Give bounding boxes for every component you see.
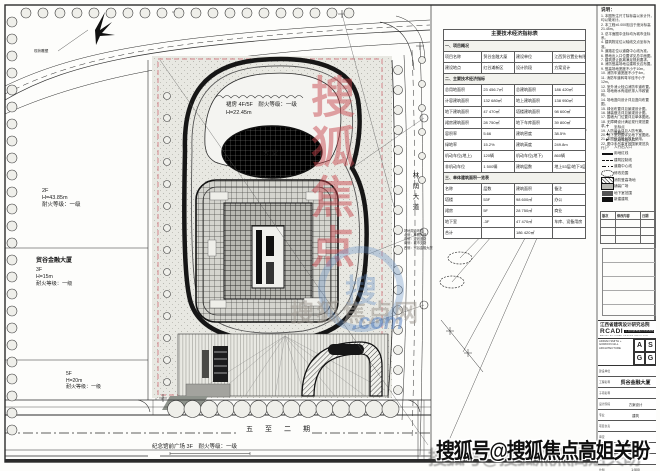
tree-symbol: [217, 401, 234, 418]
tree-symbol: [7, 221, 17, 231]
tree-symbol: [419, 177, 426, 184]
architect-block: ADRIAN SMITH +GORDON GILLARCHITECTURE AS…: [598, 339, 656, 366]
legend-symbol-tri-icon: ▲: [605, 132, 609, 137]
tree-symbol: [419, 57, 426, 64]
tree-symbol: [259, 8, 269, 18]
stamp-box: [602, 248, 656, 316]
tree-symbol: [293, 8, 303, 18]
tree-symbol: [7, 34, 17, 44]
table-row: 三、单体建筑面积一览表: [444, 173, 586, 184]
tree-symbol: [333, 401, 350, 418]
titleblock-row: 专业建筑: [598, 410, 656, 421]
tree-symbol: [21, 8, 31, 18]
watermark-bottom: 搜狐号@搜狐焦点高姐关盼: [436, 434, 660, 464]
podium-label: 裙房 4F/5F 耐火等级：一级 H=22.45m: [226, 101, 297, 117]
legend-item: 建筑控制线: [601, 157, 654, 164]
tree-symbol: [201, 401, 218, 418]
tree-symbol: [344, 8, 354, 18]
tree-symbol: [7, 408, 17, 418]
tree-symbol: [164, 379, 171, 386]
tree-symbol: [366, 401, 383, 418]
table-row: 地下建筑面积47 470㎡塔楼建筑面积98 600㎡: [444, 107, 586, 118]
tree-symbol: [267, 401, 284, 418]
legend-symbol-dark-icon: [602, 191, 613, 196]
tree-symbol: [7, 51, 17, 61]
tree-symbol: [382, 401, 399, 418]
plaza-label: 纪念馆前广场 3F 耐火等级：一级: [152, 442, 237, 450]
tree-symbol: [72, 8, 82, 18]
notes-title: 说明：: [601, 7, 654, 13]
tree-symbol: [164, 137, 171, 144]
firm-abbr: RCADI: [600, 328, 623, 335]
tree-symbol: [7, 153, 17, 163]
legend-item: 新建建筑: [601, 197, 654, 204]
note-line: 4. 建筑物定位以轴线交点坐标为准。: [601, 40, 654, 49]
tree-symbol: [7, 204, 17, 214]
legend-symbol-linet-icon: [602, 153, 613, 155]
tree-symbol: [394, 126, 403, 135]
tree-symbol: [164, 159, 171, 166]
tree-symbol: [316, 401, 333, 418]
tree-symbol: [394, 186, 403, 195]
tree-symbol: [349, 401, 366, 418]
tree-symbol: [225, 8, 235, 18]
tree-symbol: [7, 357, 17, 367]
legend-item: +坐标点: [601, 124, 654, 131]
legend-symbol-gray-icon: [601, 183, 614, 190]
tree-symbol: [419, 105, 426, 112]
firm-chip: 江西省建筑设计研究总院集团股份有限公司: [624, 330, 654, 334]
watermark-com-text: .com: [352, 309, 403, 335]
tree-symbol: [174, 8, 184, 18]
tree-symbol: [7, 17, 17, 27]
tree-symbol: [7, 425, 17, 435]
titleblock-row: 设计阶段方案设计: [598, 399, 656, 410]
tree-symbol: [164, 181, 171, 188]
parcel-a-label: 2F H=43.85m 耐火等级：一级: [42, 188, 81, 209]
tree-symbol: [327, 8, 337, 18]
legend-item: 用地红线: [601, 150, 654, 157]
tree-symbol: [7, 170, 17, 180]
table-row: 合计186 420㎡: [444, 228, 586, 239]
legend-item: ►机动车出入口: [601, 137, 654, 144]
note-line: 13. 场地雨水有组织排入市政管网。: [601, 89, 654, 98]
revision-table: 版次修改内容日期: [600, 211, 656, 244]
note-line: 1. 本图所注尺寸除标高以米计外，均以毫米计。: [601, 14, 654, 23]
tree-symbol: [7, 255, 17, 265]
titleblock-row: 项目负责: [598, 421, 656, 432]
tree-symbol: [7, 102, 17, 112]
tree-symbol: [7, 136, 17, 146]
tree-symbol: [140, 8, 150, 18]
table-row: 主要技术经济指标表: [444, 30, 586, 41]
legend-item: 地下室范围: [601, 190, 654, 197]
table-row: 非机动车位1 500辆建筑层数地上53层/地下3层: [444, 162, 586, 173]
legend-symbol-arrf-icon: ►: [605, 138, 609, 143]
tree-symbol: [7, 306, 17, 316]
lobby-label: 大堂: [263, 147, 280, 157]
tree-symbol: [394, 86, 403, 95]
tree-symbol: [419, 81, 426, 88]
tree-symbol: [164, 291, 171, 298]
tree-symbol: [310, 8, 320, 18]
note-line: 14. 场地竖向设计详见竖向布置图。: [601, 98, 654, 107]
table-row: 名称层数建筑面积备注: [444, 184, 586, 195]
table-row: 容积率5.66建筑密度38.5%: [444, 129, 586, 140]
table-row: 二、主要技术经济指标: [444, 74, 586, 85]
survey-marks: [441, 320, 483, 372]
table-row: 项目名称贸谷金融大厦建设单位江西贸谷置业有限公司: [444, 52, 586, 63]
tree-symbol: [164, 93, 171, 100]
legend-symbol-cross-icon: +: [606, 124, 610, 130]
table-row: 绿地率15.2%建筑高度249.8m: [444, 140, 586, 151]
legend-item: 铺装广场: [601, 183, 654, 190]
firm-sub: ARCHITECTURAL DESIGN INSTITUTE: [600, 335, 654, 337]
note-line: 2. 本工程±0.000相当于绝对标高21.45m。: [601, 23, 654, 32]
technical-indicator-table: 主要技术经济指标表一、项目概况项目名称贸谷金融大厦建设单位江西贸谷置业有限公司建…: [443, 29, 586, 238]
legend-item: ▷人行出入口: [601, 144, 654, 151]
tree-symbol: [7, 289, 17, 299]
tree-symbol: [184, 401, 201, 418]
tree-symbol: [394, 386, 403, 395]
tree-symbol: [7, 272, 17, 282]
legend-item: ▲高程点: [601, 131, 654, 138]
tree-symbol: [394, 106, 403, 115]
tree-symbol: [7, 374, 17, 384]
tree-symbol: [106, 8, 116, 18]
legend-symbol-black-icon: [602, 197, 613, 202]
tree-symbol: [300, 401, 317, 418]
titleblock-row: 建设单位: [598, 366, 656, 377]
legend-symbol-linedd-icon: [602, 166, 613, 167]
titleblock-row: 工程名称贸谷金融大厦: [598, 377, 656, 388]
tree-symbol: [7, 391, 17, 401]
tree-symbol: [157, 8, 167, 18]
tree-symbol: [394, 346, 403, 355]
tree-symbol: [7, 85, 17, 95]
parcel-a-floors: 2F: [42, 188, 81, 195]
tree-symbol: [419, 129, 426, 136]
tree-symbol: [164, 203, 171, 210]
tree-symbol: [164, 115, 171, 122]
asgg-logo: ASGG: [633, 339, 656, 365]
tree-symbol: [38, 8, 48, 18]
tree-symbol: [276, 8, 286, 18]
tree-symbol: [419, 153, 426, 160]
titleblock-row: 子项名称: [598, 388, 656, 399]
tree-symbol: [7, 119, 17, 129]
parcel-b-label: 3F H=15m 耐火等级：一级: [36, 267, 72, 287]
service-pad: [186, 384, 230, 397]
table-row: 建设地点红谷滩新区设计阶段方案设计: [444, 63, 586, 74]
tree-symbol: [394, 366, 403, 375]
legend-symbol-lined-icon: [602, 160, 613, 161]
tree-symbol: [208, 8, 218, 18]
road-name-right: 林荫大道: [409, 172, 419, 214]
tree-symbol: [7, 323, 17, 333]
sculpture-label: 现状雕塑: [34, 49, 48, 54]
tree-symbol: [7, 187, 17, 197]
legend-symbol-arro-icon: ▷: [606, 145, 609, 150]
tree-symbol: [164, 313, 171, 320]
tree-symbol: [164, 335, 171, 342]
side-note-line: 西侧：贸谷金融大厦: [404, 246, 460, 250]
table-row: 塔楼53F98 600㎡办公: [444, 195, 586, 206]
watermark-red-vertical: 搜狐焦点: [296, 74, 360, 274]
drawing-sheet: 现状雕塑 2F H=43.85m 耐火等级：一级 贸谷金融大厦 3F H=15m…: [0, 0, 660, 471]
tree-symbol: [394, 246, 403, 255]
parcel-a-fire-rating: 耐火等级：一级: [42, 202, 81, 209]
tree-symbol: [7, 238, 17, 248]
tree-symbol: [250, 401, 267, 418]
dimension-line: [170, 452, 250, 455]
note-line: 5. 道路定位以道路中心线为准。: [601, 49, 654, 53]
tree-symbol: [283, 401, 300, 418]
tree-symbol: [164, 247, 171, 254]
escalator-block: [213, 346, 228, 382]
tree-symbol: [7, 68, 17, 78]
tree-symbol: [164, 357, 171, 364]
table-row: 裙房建筑面积28 750㎡地下车库面积39 800㎡: [444, 118, 586, 129]
tree-symbol: [394, 66, 403, 75]
tree-symbol: [394, 146, 403, 155]
tree-symbol: [191, 8, 201, 18]
table-row: 总用地面积23 456.7㎡总建筑面积186 420㎡: [444, 85, 586, 96]
table-row: 裙房5F28 750㎡商业: [444, 206, 586, 217]
parcel-b-name: 贸谷金融大厦: [36, 255, 72, 264]
tree-symbol: [168, 401, 185, 418]
design-firm-brand: 江西省建筑设计研究总院 RCADI 江西省建筑设计研究总院集团股份有限公司 AR…: [598, 321, 656, 339]
tree-symbol: [123, 8, 133, 18]
table-row: 机动车位(地上)120辆机动车位(地下)860辆: [444, 151, 586, 162]
road-name-bottom: 五至二期: [246, 424, 322, 434]
parcel-c-label: 5F H=20m 耐火等级：一级: [66, 371, 101, 391]
note-line: 11. 消防车道转弯半径不小于12m。: [601, 76, 654, 85]
tree-symbol: [164, 225, 171, 232]
legend: +坐标点▲高程点►机动车出入口▷人行出入口用地红线建筑控制线道路中心线修改范围消…: [601, 124, 654, 203]
table-row: 一、项目概况: [444, 41, 586, 52]
tree-symbol: [234, 401, 251, 418]
tree-symbol: [7, 340, 17, 350]
tree-symbol: [89, 8, 99, 18]
tree-symbol: [394, 206, 403, 215]
tree-symbol: [242, 8, 252, 18]
tree-symbol: [394, 166, 403, 175]
tree-symbol: [164, 269, 171, 276]
tree-symbol: [394, 226, 403, 235]
table-row: 计容建筑面积132 680㎡地上建筑面积138 950㎡: [444, 96, 586, 107]
table-row: 地下室-3F47 470㎡车库、设备用房: [444, 217, 586, 228]
parcel-a-height: H=43.85m: [42, 195, 81, 202]
tree-symbol: [55, 8, 65, 18]
